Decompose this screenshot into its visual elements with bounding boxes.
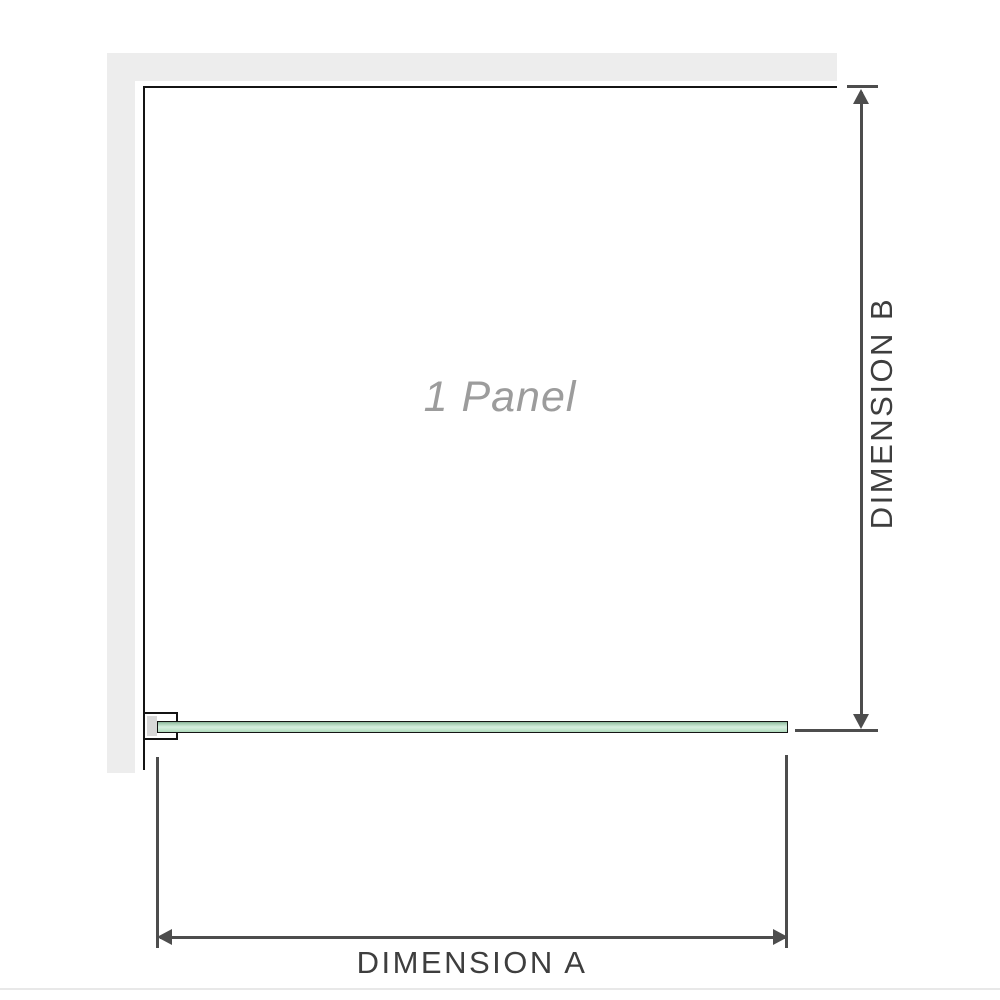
- dimension-a-line: [160, 936, 786, 939]
- arrow-down-icon: [853, 714, 869, 729]
- arrow-left-icon: [157, 929, 172, 945]
- wall-left-segment: [107, 53, 135, 773]
- wall-edge-line-top: [143, 86, 837, 88]
- panel-count-label: 1 Panel: [300, 372, 700, 422]
- dimension-a-left-extension-line: [156, 757, 159, 948]
- panel-dimension-diagram: 1 Panel DIMENSION B DIMENSION A: [0, 0, 1000, 1000]
- dimension-b-top-tick: [847, 85, 878, 88]
- dimension-a-right-extension-line: [785, 755, 788, 948]
- wall-bracket-pad: [147, 716, 157, 736]
- wall-edge-line-left: [143, 86, 145, 770]
- bottom-divider-line: [0, 988, 1000, 990]
- dimension-b-bottom-tick: [795, 729, 878, 732]
- glass-panel: [157, 721, 788, 733]
- arrow-right-icon: [773, 929, 788, 945]
- wall-top-segment: [107, 53, 837, 81]
- arrow-up-icon: [853, 89, 869, 104]
- dimension-b-label: DIMENSION B: [863, 183, 901, 643]
- dimension-a-label: DIMENSION A: [242, 944, 702, 982]
